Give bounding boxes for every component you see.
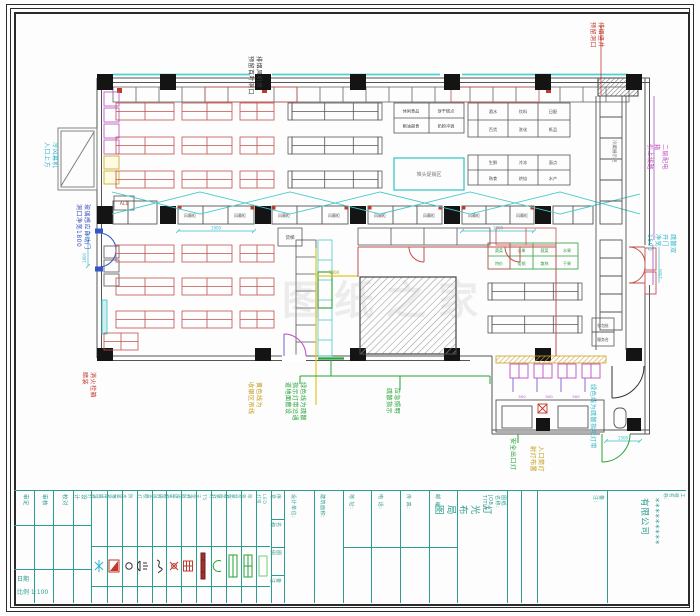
svg-text:1500: 1500 xyxy=(618,436,629,441)
svg-text:散称: 散称 xyxy=(541,260,549,266)
entrance-door-left xyxy=(96,229,117,271)
svg-text:面点: 面点 xyxy=(549,160,557,166)
legend-cell: 双管荧光灯 xyxy=(226,491,242,603)
svg-text:冷冻: 冷冻 xyxy=(519,159,527,166)
svg-text:饮料: 饮料 xyxy=(519,108,528,115)
corridor-label: 冷藏展示柜 xyxy=(611,140,618,163)
wall-shelf-row xyxy=(113,87,629,102)
service1-label: 存包处 xyxy=(597,323,609,328)
small-boxes xyxy=(114,196,302,246)
legend-table: 吸顶灯 安全出口灯 防水吸顶灯 壁灯 接线盒 应急壁灯 疏散指示灯 T5支架灯 xyxy=(92,491,285,603)
annotation-exit-sign: 安全出口灯 xyxy=(509,438,517,471)
legend-header-col: 序号 名称 图例 备注 xyxy=(271,491,285,603)
company-name: *********有限公司 xyxy=(639,498,660,545)
annotation-spotlights: 入口筒灯 射灯布置 xyxy=(529,446,544,472)
legend-cell: 防水吸顶灯 xyxy=(122,491,138,603)
dept-table-1 xyxy=(394,103,464,133)
svg-text:蔬菜: 蔬菜 xyxy=(495,247,503,253)
backroom-cells xyxy=(358,228,556,245)
green-lines xyxy=(300,359,518,444)
svg-text:风幕柜: 风幕柜 xyxy=(516,212,528,218)
svg-text:水产: 水产 xyxy=(549,175,557,182)
side-door-bottom xyxy=(282,334,306,362)
entrance-lobby xyxy=(496,400,626,432)
legend-cell: 单管荧光灯 xyxy=(241,491,257,603)
promo-label: 堆头促销区 xyxy=(416,171,441,178)
title-block: 审定 审核 校对 设计 日期 比例 1:100 吸顶灯 安全出口灯 防水吸顶灯 … xyxy=(14,490,686,602)
columns xyxy=(97,74,642,431)
legend-cell: LED灯带 xyxy=(256,491,272,603)
svg-text:水果: 水果 xyxy=(563,247,571,253)
svg-text:酒水: 酒水 xyxy=(489,108,498,115)
company-cell: 工程名称: *********有限公司 xyxy=(608,491,686,603)
svg-text:风幕柜: 风幕柜 xyxy=(234,212,246,218)
spacer-cell-1 xyxy=(508,491,522,603)
al-label: AL1 xyxy=(120,201,129,207)
legend-cell: 应急壁灯 xyxy=(167,491,183,603)
svg-text:干果: 干果 xyxy=(563,260,571,266)
dept-table-3-labels: 生鲜冷冻面点 熟食烘焙水产 xyxy=(489,159,557,182)
annotation-evac-cyan: 绿色线为疏散指示灯带 xyxy=(589,384,597,449)
annotation-smoke-shaft: 排烟竖井 预留洞口 xyxy=(589,22,604,48)
svg-text:风幕柜: 风幕柜 xyxy=(328,212,340,218)
svg-text:百货: 百货 xyxy=(489,126,497,133)
svg-text:纸品: 纸品 xyxy=(549,126,557,133)
annotation-exit-door: 疏散双开门 净宽1500 xyxy=(646,234,676,258)
revision-table: 审定 审核 校对 设计 日期 比例 1:100 xyxy=(14,491,92,603)
annotation-auto-door: 玻璃感应自动门 洞口净宽1800 xyxy=(75,204,90,250)
annotation-air-curtain: 冷风幕机 入口上方 xyxy=(43,142,58,168)
checkout-hatch xyxy=(496,356,606,363)
legend-cell: 筒灯 xyxy=(211,491,227,603)
job-title-cell: 灯光布局图 图纸名称: JOB TITLE xyxy=(458,491,508,603)
annotation-emergency: 应急照明 疏散指示 xyxy=(385,388,400,414)
svg-text:日配: 日配 xyxy=(549,109,558,115)
svg-text:粮油副食: 粮油副食 xyxy=(403,123,421,130)
cad-sheet: { "watermark": "图纸之家", "ann": { "top_bla… xyxy=(0,0,700,616)
svg-text:烘焙: 烘焙 xyxy=(519,175,527,182)
annotation-fan-room: 排烟风机房 预留百叶洞口 xyxy=(247,56,262,95)
svg-text:1800: 1800 xyxy=(82,252,87,263)
legend-cell: 吸顶灯 xyxy=(92,491,108,603)
right-wall-equipment xyxy=(645,96,656,294)
annotation-cash-line: 黄色线为 收银区吊线 xyxy=(247,382,262,415)
remarks-label: 备注: xyxy=(592,495,605,503)
legend-cell: 接线盒 xyxy=(152,491,168,603)
checkout-dims: 500500500 xyxy=(518,394,580,399)
svg-text:休闲食品: 休闲食品 xyxy=(403,108,420,115)
watermark: 图纸之家 xyxy=(282,268,490,326)
loading-ramp xyxy=(58,128,97,190)
legend-cell: T5支架灯 xyxy=(196,491,212,603)
legend-cell: 疏散指示灯 xyxy=(181,491,197,603)
project-label: 工程名称: xyxy=(662,493,685,500)
svg-text:1900: 1900 xyxy=(211,226,222,231)
dept-table-1-labels: 休闲食品饼干糕点 粮油副食奶粉冲调 xyxy=(403,108,455,130)
svg-text:500: 500 xyxy=(572,394,580,399)
svg-text:500: 500 xyxy=(518,394,526,399)
svg-text:洗化: 洗化 xyxy=(519,126,528,133)
legend-cell: 安全出口灯 xyxy=(107,491,123,603)
right-corridor xyxy=(596,96,626,350)
legend-cell: 壁灯 xyxy=(137,491,153,603)
job-title-label: 图纸名称: JOB TITLE xyxy=(481,495,506,511)
annotation-hydrant: 消火栓箱 暗装 xyxy=(81,372,96,398)
svg-text:水果: 水果 xyxy=(518,247,526,253)
lobby-door xyxy=(612,366,644,398)
service2-label: 服务台 xyxy=(597,337,609,342)
svg-text:生鲜: 生鲜 xyxy=(489,159,498,166)
lift-label: 货梯 xyxy=(286,234,295,241)
svg-text:500: 500 xyxy=(545,394,553,399)
spacer-cell-2 xyxy=(522,491,538,603)
svg-text:蔬菜: 蔬菜 xyxy=(541,247,549,253)
svg-text:1500: 1500 xyxy=(658,268,663,279)
svg-text:奶粉冲调: 奶粉冲调 xyxy=(438,123,455,130)
svg-text:特价: 特价 xyxy=(495,260,503,266)
zigzag-lines xyxy=(112,192,640,214)
remarks-cell: 备注: xyxy=(538,491,608,603)
annotation-panel: 二层配电箱 引上线路 xyxy=(646,144,669,176)
svg-text:促销: 促销 xyxy=(518,260,526,266)
svg-text:风幕柜: 风幕柜 xyxy=(423,212,435,218)
annotation-evac-strip: 绿色线为疏散 指示灯带沿通 道地面敷设 xyxy=(284,382,307,421)
svg-text:熟食: 熟食 xyxy=(489,175,498,182)
checkout-counters xyxy=(510,364,600,392)
svg-text:饼干糕点: 饼干糕点 xyxy=(438,108,455,115)
dept-table-2-labels: 酒水饮料日配 百货洗化纸品 xyxy=(489,108,558,133)
